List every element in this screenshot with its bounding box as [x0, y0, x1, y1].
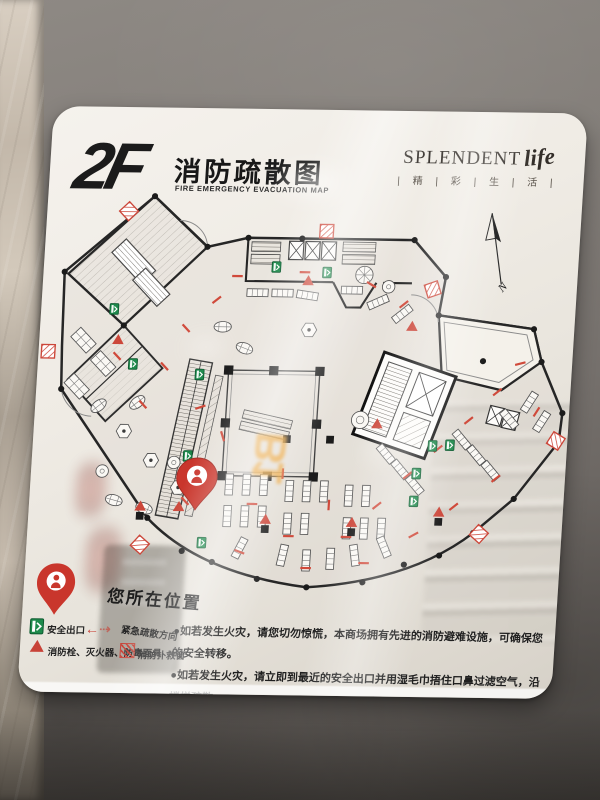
evacuation-sign-panel: 2F 消防疏散图 FIRE EMERGENCY EVACUATION MAP S… — [17, 106, 588, 699]
photo-scene: 2F 消防疏散图 FIRE EMERGENCY EVACUATION MAP S… — [0, 0, 600, 800]
you-are-here-legend-icon — [34, 562, 77, 617]
floor-plan-map: N — [21, 176, 584, 645]
north-arrow-icon: N — [482, 213, 515, 295]
light-reflection-text: B1 — [242, 430, 298, 482]
exit-sign-icon — [29, 618, 45, 635]
floor-shadow — [0, 710, 600, 800]
brand-script: life — [523, 143, 555, 172]
direction-arrows-icon: ←⇢ — [85, 620, 112, 638]
legend-exit-label: 安全出口 — [47, 622, 86, 637]
fire-equipment-icon — [30, 640, 45, 652]
rescue-window-icon — [119, 643, 135, 658]
brand-name: SPLENDENT — [403, 147, 522, 170]
instruction-line: ●如若发生火灾，请您切勿惊慌，本商场拥有先进的消防避难设施，可确保您的安全转移。 — [171, 620, 546, 672]
svg-text:N: N — [495, 280, 511, 295]
